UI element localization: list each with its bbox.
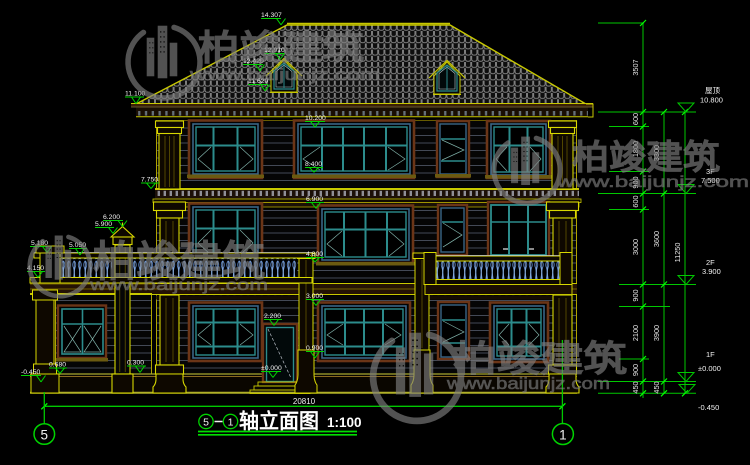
svg-text:450: 450 <box>631 381 640 393</box>
svg-text:柏竣建筑: 柏竣建筑 <box>453 338 627 379</box>
svg-text:4.800: 4.800 <box>306 251 323 258</box>
svg-text:3.900: 3.900 <box>702 267 721 276</box>
svg-text:www.baijunjz.com: www.baijunjz.com <box>89 277 268 294</box>
svg-text:20810: 20810 <box>293 397 316 406</box>
svg-text:www.baijunjz.com: www.baijunjz.com <box>555 174 749 191</box>
svg-text:3900: 3900 <box>652 325 661 341</box>
svg-text:10.800: 10.800 <box>700 96 723 105</box>
svg-text:6.900: 6.900 <box>306 196 323 203</box>
svg-text:0.300: 0.300 <box>127 360 144 367</box>
svg-text:轴立面图: 轴立面图 <box>239 409 319 433</box>
svg-text:10.200: 10.200 <box>305 115 326 122</box>
svg-text:1:100: 1:100 <box>327 415 362 430</box>
svg-text:5: 5 <box>41 427 49 442</box>
svg-text:www.baijunjz.com: www.baijunjz.com <box>189 66 380 84</box>
svg-text:1F: 1F <box>706 350 715 359</box>
svg-text:2F: 2F <box>706 258 715 267</box>
svg-text:14.307: 14.307 <box>261 12 282 19</box>
svg-text:11250: 11250 <box>673 243 682 263</box>
svg-text:0.680: 0.680 <box>49 362 66 369</box>
svg-text:柏竣建筑: 柏竣建筑 <box>198 28 364 68</box>
svg-text:1: 1 <box>559 427 567 442</box>
svg-text:www.baijunjz.com: www.baijunjz.com <box>446 375 610 393</box>
svg-text:8.400: 8.400 <box>305 161 322 168</box>
svg-text:-0.450: -0.450 <box>21 369 40 376</box>
svg-text:5.900: 5.900 <box>95 221 112 228</box>
svg-text:2.200: 2.200 <box>264 313 281 320</box>
svg-text:0.900: 0.900 <box>306 345 323 352</box>
svg-text:900: 900 <box>631 364 640 376</box>
svg-text:6.200: 6.200 <box>103 214 120 221</box>
svg-text:5: 5 <box>203 416 209 428</box>
svg-text:1: 1 <box>228 416 234 428</box>
svg-text:2100: 2100 <box>631 325 640 341</box>
svg-text:3600: 3600 <box>652 231 661 247</box>
svg-text:±0.000: ±0.000 <box>261 365 282 372</box>
svg-text:-0.450: -0.450 <box>698 403 719 412</box>
svg-text:7.750: 7.750 <box>141 177 158 184</box>
svg-text:450: 450 <box>652 381 661 393</box>
svg-text:3000: 3000 <box>631 239 640 255</box>
svg-text:柏竣建筑: 柏竣建筑 <box>572 138 720 177</box>
svg-text:3507: 3507 <box>631 59 640 75</box>
svg-text:600: 600 <box>631 113 640 125</box>
svg-text:900: 900 <box>631 289 640 301</box>
svg-text:3.000: 3.000 <box>306 293 323 300</box>
svg-text:屋顶: 屋顶 <box>705 86 720 95</box>
svg-text:600: 600 <box>631 195 640 207</box>
svg-text:±0.000: ±0.000 <box>698 364 721 373</box>
